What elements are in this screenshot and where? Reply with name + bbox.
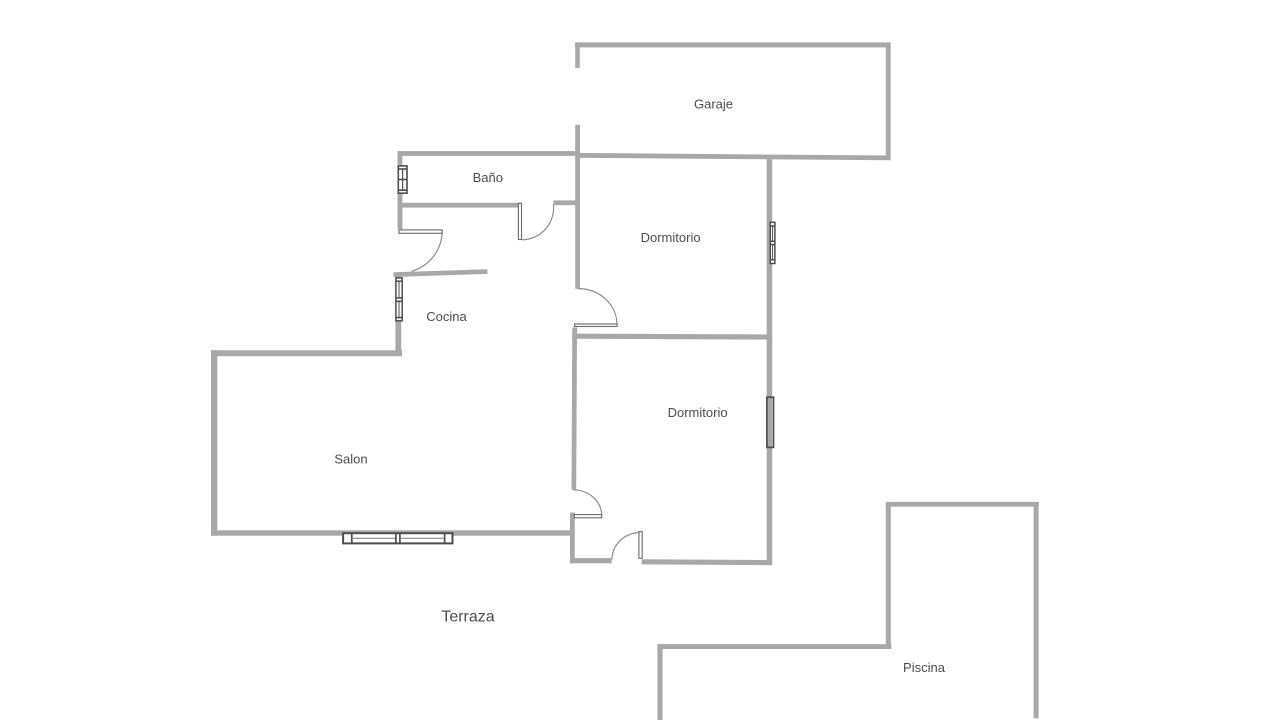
svg-text:Dormitorio: Dormitorio [641,230,701,245]
svg-text:Cocina: Cocina [426,309,467,324]
svg-text:Salon: Salon [334,452,367,467]
svg-text:Garaje: Garaje [694,96,733,111]
svg-text:Dormitorio: Dormitorio [668,405,728,420]
svg-text:Baño: Baño [473,170,503,185]
svg-text:Terraza: Terraza [441,609,494,626]
svg-text:Piscina: Piscina [903,660,946,675]
